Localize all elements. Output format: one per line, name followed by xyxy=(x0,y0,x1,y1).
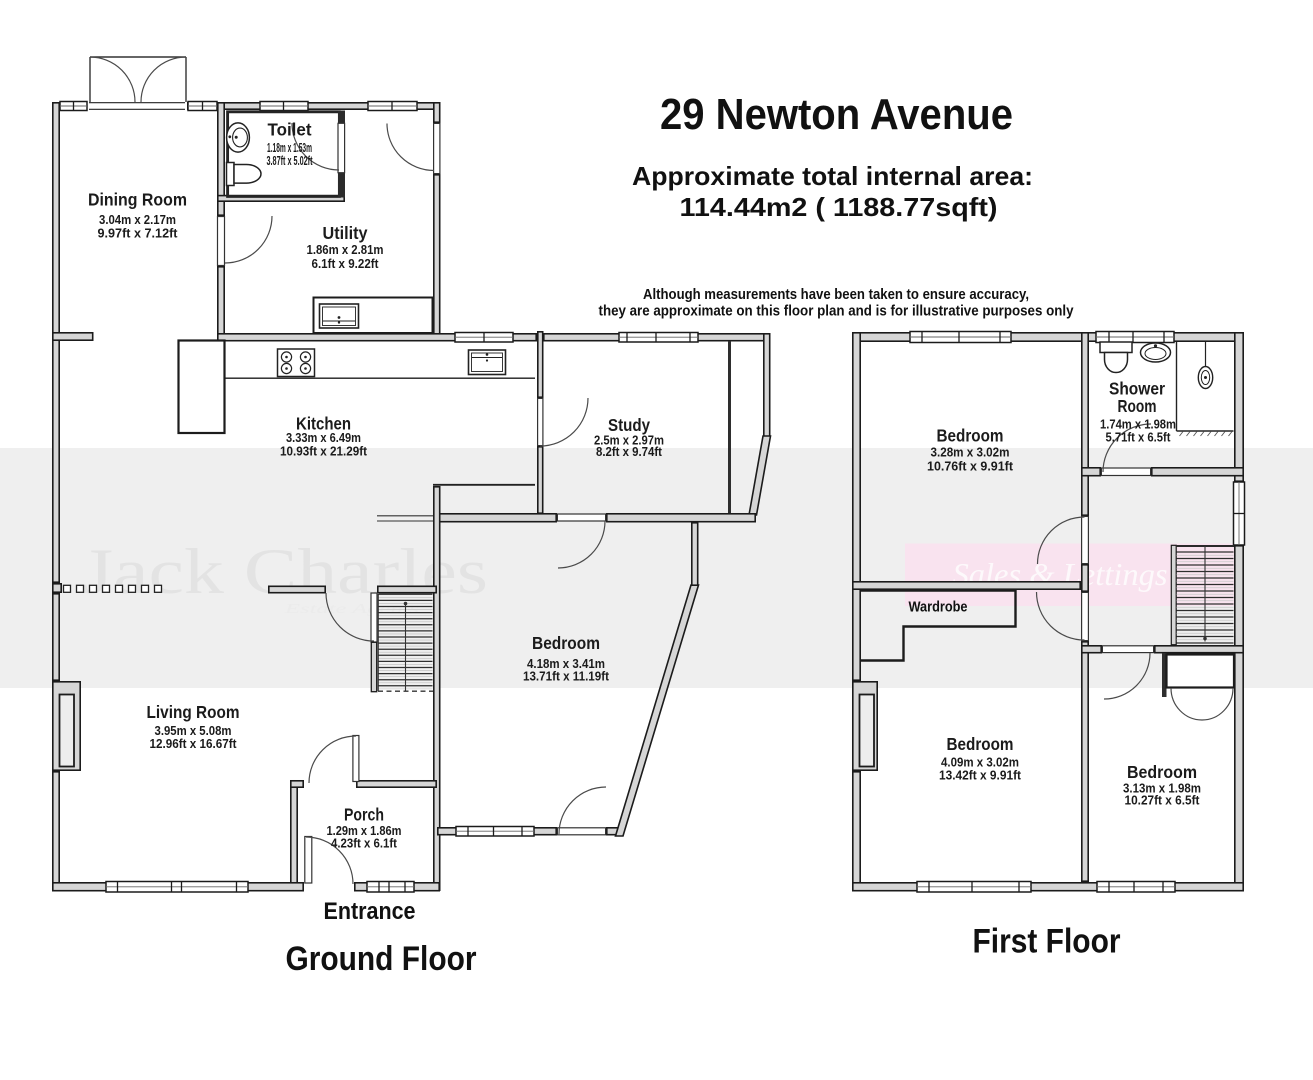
svg-text:10.93ft x 21.29ft: 10.93ft x 21.29ft xyxy=(280,443,368,458)
svg-text:Toilet: Toilet xyxy=(268,120,312,140)
svg-text:8.2ft x 9.74ft: 8.2ft x 9.74ft xyxy=(596,444,663,459)
svg-text:Living Room: Living Room xyxy=(147,702,240,722)
svg-text:4.23ft x 6.1ft: 4.23ft x 6.1ft xyxy=(331,836,398,851)
svg-text:29 Newton Avenue: 29 Newton Avenue xyxy=(660,90,1013,139)
svg-text:12.96ft x 16.67ft: 12.96ft x 16.67ft xyxy=(150,736,238,751)
svg-text:they are approximate on this f: they are approximate on this floor plan … xyxy=(599,303,1075,320)
svg-text:Wardrobe: Wardrobe xyxy=(909,599,968,615)
svg-text:Although measurements have bee: Although measurements have been taken to… xyxy=(643,286,1029,303)
svg-text:First Floor: First Floor xyxy=(973,923,1121,961)
svg-text:Ground Floor: Ground Floor xyxy=(286,940,477,978)
svg-text:13.71ft x 11.19ft: 13.71ft x 11.19ft xyxy=(523,668,610,683)
svg-text:Dining Room: Dining Room xyxy=(88,190,187,210)
svg-text:5.71ft x 6.5ft: 5.71ft x 6.5ft xyxy=(1106,430,1172,445)
svg-text:3.28m x 3.02m: 3.28m x 3.02m xyxy=(931,444,1010,459)
svg-text:6.1ft x 9.22ft: 6.1ft x 9.22ft xyxy=(312,256,380,271)
svg-text:10.27ft x 6.5ft: 10.27ft x 6.5ft xyxy=(1125,792,1201,807)
svg-text:3.87ft x 5.02ft: 3.87ft x 5.02ft xyxy=(267,153,313,168)
svg-text:Bedroom: Bedroom xyxy=(532,633,600,653)
svg-text:10.76ft x 9.91ft: 10.76ft x 9.91ft xyxy=(927,458,1014,473)
svg-text:1.86m x 2.81m: 1.86m x 2.81m xyxy=(307,242,384,257)
svg-text:Bedroom: Bedroom xyxy=(1127,762,1197,782)
svg-text:Entrance: Entrance xyxy=(324,898,416,925)
svg-text:Utility: Utility xyxy=(323,223,368,243)
svg-text:9.97ft x 7.12ft: 9.97ft x 7.12ft xyxy=(98,226,179,241)
svg-text:Bedroom: Bedroom xyxy=(937,426,1004,446)
svg-text:Approximate total internal are: Approximate total internal area: xyxy=(632,161,1033,191)
svg-text:Bedroom: Bedroom xyxy=(947,734,1014,754)
svg-text:Porch: Porch xyxy=(344,805,384,825)
svg-text:114.44m2 ( 1188.77sqft): 114.44m2 ( 1188.77sqft) xyxy=(680,192,998,222)
svg-text:Room: Room xyxy=(1118,396,1157,416)
svg-text:13.42ft x 9.91ft: 13.42ft x 9.91ft xyxy=(939,767,1022,782)
